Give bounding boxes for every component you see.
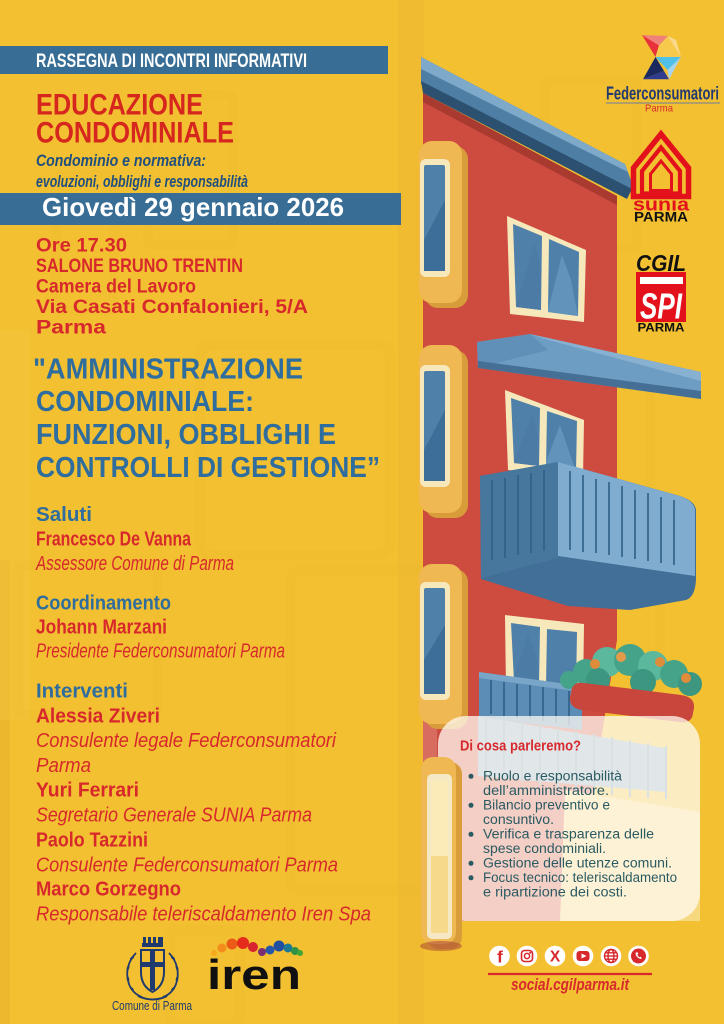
svg-text:Federconsumatori: Federconsumatori	[606, 84, 719, 104]
svg-text:CONDOMINIALE: CONDOMINIALE	[36, 117, 234, 150]
svg-text:Presidente Federconsumatori Pa: Presidente Federconsumatori Parma	[36, 641, 285, 663]
svg-text:Condominio e normativa:: Condominio e normativa:	[36, 151, 206, 170]
svg-text:Parma: Parma	[36, 316, 106, 338]
svg-text:Comune di Parma: Comune di Parma	[112, 999, 192, 1013]
svg-text:e ripartizione dei costi.: e ripartizione dei costi.	[483, 885, 627, 900]
svg-text:SALONE BRUNO TRENTIN: SALONE BRUNO TRENTIN	[36, 255, 243, 277]
svg-text:Yuri Ferrari: Yuri Ferrari	[36, 780, 139, 802]
svg-text:PARMA: PARMA	[634, 210, 688, 225]
svg-text:CONDOMINIALE:: CONDOMINIALE:	[36, 386, 254, 418]
svg-text:Assessore Comune di Parma: Assessore Comune di Parma	[35, 553, 234, 575]
svg-text:iren: iren	[207, 951, 301, 998]
svg-text:Verifica e trasparenza delle: Verifica e trasparenza delle	[483, 827, 654, 842]
svg-text:Gestione delle utenze comuni.: Gestione delle utenze comuni.	[483, 856, 672, 871]
svg-text:Responsabile teleriscaldamento: Responsabile teleriscaldamento Iren Spa	[36, 904, 371, 926]
svg-text:Parma: Parma	[645, 103, 673, 115]
svg-text:Francesco De Vanna: Francesco De Vanna	[36, 529, 192, 551]
svg-text:X: X	[550, 949, 561, 966]
svg-text:evoluzioni, obblighi e respons: evoluzioni, obblighi e responsabilità	[36, 172, 248, 191]
svg-text:PARMA: PARMA	[638, 321, 685, 335]
svg-text:social.cgilparma.it: social.cgilparma.it	[511, 975, 630, 994]
svg-text:Ruolo e responsabilità: Ruolo e responsabilità	[483, 769, 623, 784]
svg-text:Giovedì 29 gennaio 2026: Giovedì 29 gennaio 2026	[42, 192, 344, 222]
svg-text:Interventi: Interventi	[36, 680, 128, 702]
svg-text:FUNZIONI, OBBLIGHI E: FUNZIONI, OBBLIGHI E	[36, 419, 336, 451]
svg-text:Focus tecnico: teleriscaldamen: Focus tecnico: teleriscaldamento	[483, 870, 677, 885]
svg-text:Paolo Tazzini: Paolo Tazzini	[36, 829, 148, 851]
svg-text:Consulente Federconsumatori Pa: Consulente Federconsumatori Parma	[36, 854, 338, 876]
svg-text:Saluti: Saluti	[36, 504, 92, 526]
svg-text:RASSEGNA DI INCONTRI INFORMATI: RASSEGNA DI INCONTRI INFORMATIVI	[36, 51, 307, 72]
svg-text:Marco Gorzegno: Marco Gorzegno	[36, 879, 181, 901]
svg-text:CONTROLLI DI GESTIONE”: CONTROLLI DI GESTIONE”	[36, 452, 380, 484]
svg-text:dell’amministratore.: dell’amministratore.	[483, 783, 609, 798]
svg-text:Di cosa parleremo?: Di cosa parleremo?	[460, 739, 581, 755]
svg-text:Camera del Lavoro: Camera del Lavoro	[36, 275, 196, 297]
svg-text:Alessia Ziveri: Alessia Ziveri	[36, 705, 160, 727]
svg-text:"AMMINISTRAZIONE: "AMMINISTRAZIONE	[33, 353, 303, 385]
svg-text:consuntivo.: consuntivo.	[483, 812, 554, 827]
svg-text:Coordinamento: Coordinamento	[36, 592, 171, 614]
svg-text:spese condominiali.: spese condominiali.	[483, 841, 606, 856]
svg-text:Johann Marzani: Johann Marzani	[36, 617, 167, 639]
svg-text:f: f	[497, 948, 503, 967]
svg-text:Segretario Generale SUNIA Parm: Segretario Generale SUNIA Parma	[36, 804, 312, 826]
svg-text:Parma: Parma	[36, 755, 91, 777]
svg-text:Ore 17.30: Ore 17.30	[36, 234, 127, 256]
svg-text:Bilancio preventivo e: Bilancio preventivo e	[483, 798, 610, 813]
svg-text:Via Casati Confalonieri, 5/A: Via Casati Confalonieri, 5/A	[36, 296, 308, 318]
svg-text:Consulente legale Federconsuma: Consulente legale Federconsumatori	[36, 730, 337, 752]
